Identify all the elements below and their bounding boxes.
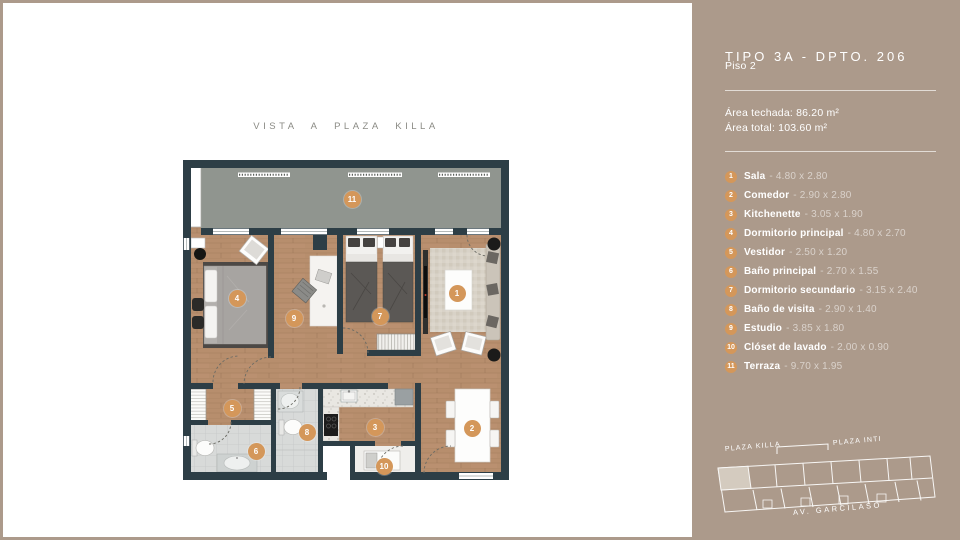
legend-room-dims: - 2.70 x 1.55: [820, 266, 878, 277]
legend-room-name: Vestidor: [744, 247, 785, 258]
divider: [725, 90, 936, 91]
legend-number-badge: 7: [725, 285, 737, 297]
single-bed: [383, 236, 413, 322]
plan-marker-comedor: 2: [464, 420, 481, 437]
legend-room-dims: - 2.50 x 1.20: [789, 247, 847, 258]
single-bed: [346, 236, 377, 322]
plan-marker-bano-ppal: 6: [248, 443, 265, 460]
legend-number-badge: 1: [725, 171, 737, 183]
area-techada: Área techada: 86.20 m²: [725, 106, 839, 121]
sofa-pillow: [486, 251, 499, 264]
plan-marker-estudio: 9: [286, 310, 303, 327]
lamp: [194, 248, 206, 260]
terrace-railing: [238, 173, 490, 178]
pillow: [205, 270, 217, 302]
closet: [190, 389, 206, 422]
floor-label: Piso 2: [725, 60, 756, 72]
legend-room-dims: - 2.90 x 2.80: [793, 190, 851, 201]
legend-number-badge: 2: [725, 190, 737, 202]
plan-marker-terraza: 11: [344, 191, 361, 208]
bedside-bench: [192, 298, 204, 311]
dining-chair: [446, 401, 455, 418]
legend-room-dims: - 4.80 x 2.70: [848, 228, 906, 239]
legend-number-badge: 6: [725, 266, 737, 278]
legend-item: 6Baño principal- 2.70 x 1.55: [725, 262, 918, 281]
legend-number-badge: 9: [725, 323, 737, 335]
closet: [254, 389, 271, 422]
legend-room-name: Sala: [744, 171, 765, 182]
legend-room-name: Baño principal: [744, 266, 816, 277]
plant: [488, 238, 501, 251]
legend-room-name: Dormitorio secundario: [744, 285, 855, 296]
legend-item: 3Kitchenette- 3.05 x 1.90: [725, 205, 918, 224]
exterior-notch: [323, 445, 350, 480]
divider: [725, 151, 936, 152]
dining-chair: [446, 430, 455, 447]
floor-plan-drawing: [183, 158, 509, 482]
legend-room-dims: - 3.85 x 1.80: [786, 323, 844, 334]
legend-room-name: Estudio: [744, 323, 782, 334]
legend-room-name: Dormitorio principal: [744, 228, 844, 239]
legend-item: 8Baño de visita- 2.90 x 1.40: [725, 300, 918, 319]
toilet: [196, 441, 214, 456]
legend-item: 11Terraza- 9.70 x 1.95: [725, 357, 918, 376]
sink: [281, 394, 299, 409]
legend-number-badge: 10: [725, 342, 737, 354]
legend-item: 1Sala- 4.80 x 2.80: [725, 167, 918, 186]
plan-marker-closet-lav: 10: [376, 458, 393, 475]
bedside-bench: [192, 316, 204, 329]
legend-room-dims: - 2.00 x 0.90: [831, 342, 889, 353]
plan-marker-dorm-ppal: 4: [229, 290, 246, 307]
plan-marker-dorm-sec: 7: [372, 308, 389, 325]
legend-room-name: Clóset de lavado: [744, 342, 827, 353]
sidebar: TIPO 3A - DPTO. 206 Piso 2 Área techada:…: [692, 0, 960, 540]
tv: [424, 266, 427, 318]
pillow: [205, 306, 217, 338]
areas-block: Área techada: 86.20 m² Área total: 103.6…: [725, 106, 839, 135]
vista-label: VISTA A PLAZA KILLA: [183, 121, 509, 132]
legend-number-badge: 8: [725, 304, 737, 316]
map-bracket: [777, 444, 828, 454]
plan-marker-kitchenette: 3: [367, 419, 384, 436]
plant: [488, 349, 501, 362]
legend-room-dims: - 2.90 x 1.40: [819, 304, 877, 315]
nightstand: [191, 238, 205, 248]
dining-chair: [490, 401, 499, 418]
nightstand: [378, 237, 384, 248]
legend-item: 9Estudio- 3.85 x 1.80: [725, 319, 918, 338]
floor-plan: 1 2 3 4 5 6 7 8 9 10 11: [183, 158, 509, 482]
legend-number-badge: 3: [725, 209, 737, 221]
legend-item: 7Dormitorio secundario- 3.15 x 2.40: [725, 281, 918, 300]
fridge: [395, 389, 413, 405]
legend-item: 4Dormitorio principal- 4.80 x 2.70: [725, 224, 918, 243]
legend-item: 10Clóset de lavado- 2.00 x 0.90: [725, 338, 918, 357]
legend-room-name: Terraza: [744, 361, 780, 372]
area-total: Área total: 103.60 m²: [725, 121, 839, 136]
sofa-pillow: [486, 283, 499, 296]
legend-number-badge: 4: [725, 228, 737, 240]
plan-marker-sala: 1: [449, 285, 466, 302]
legend-item: 2Comedor- 2.90 x 2.80: [725, 186, 918, 205]
dining-chair: [490, 430, 499, 447]
legend-room-name: Baño de visita: [744, 304, 815, 315]
legend-room-dims: - 3.15 x 2.40: [859, 285, 917, 296]
legend-number-badge: 11: [725, 361, 737, 373]
legend-room-dims: - 3.05 x 1.90: [805, 209, 863, 220]
legend-room-name: Comedor: [744, 190, 789, 201]
closet: [377, 334, 417, 350]
highlighted-unit: [718, 466, 751, 490]
room-legend: 1Sala- 4.80 x 2.80 2Comedor- 2.90 x 2.80…: [725, 167, 918, 376]
legend-room-dims: - 4.80 x 2.80: [769, 171, 827, 182]
legend-number-badge: 5: [725, 247, 737, 259]
legend-item: 5Vestidor- 2.50 x 1.20: [725, 243, 918, 262]
legend-room-dims: - 9.70 x 1.95: [784, 361, 842, 372]
plan-marker-bano-visita: 8: [299, 424, 316, 441]
plan-marker-vestidor: 5: [224, 400, 241, 417]
site-map: [705, 440, 945, 535]
legend-room-name: Kitchenette: [744, 209, 801, 220]
